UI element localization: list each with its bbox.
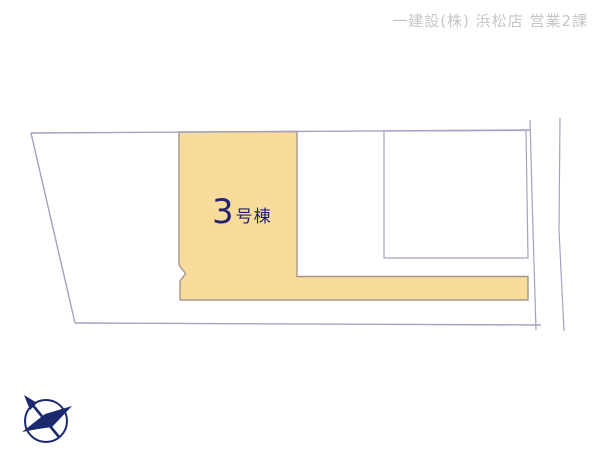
north-compass-icon [22, 395, 72, 442]
site-plan-canvas [0, 0, 600, 450]
building-label: 3 号棟 [212, 196, 272, 228]
building-label-suffix: 号棟 [236, 209, 272, 228]
right-road-line-outer [559, 118, 564, 331]
building-label-number: 3 [212, 196, 234, 228]
boundary-bottom-line [75, 323, 541, 325]
adjacent-lot-outline [384, 131, 528, 259]
boundary-left-line [31, 133, 75, 323]
right-road-line-inner [530, 120, 536, 330]
site-plan-page: 一建設(株) 浜松店 営業2課 3 号棟 [0, 0, 600, 450]
